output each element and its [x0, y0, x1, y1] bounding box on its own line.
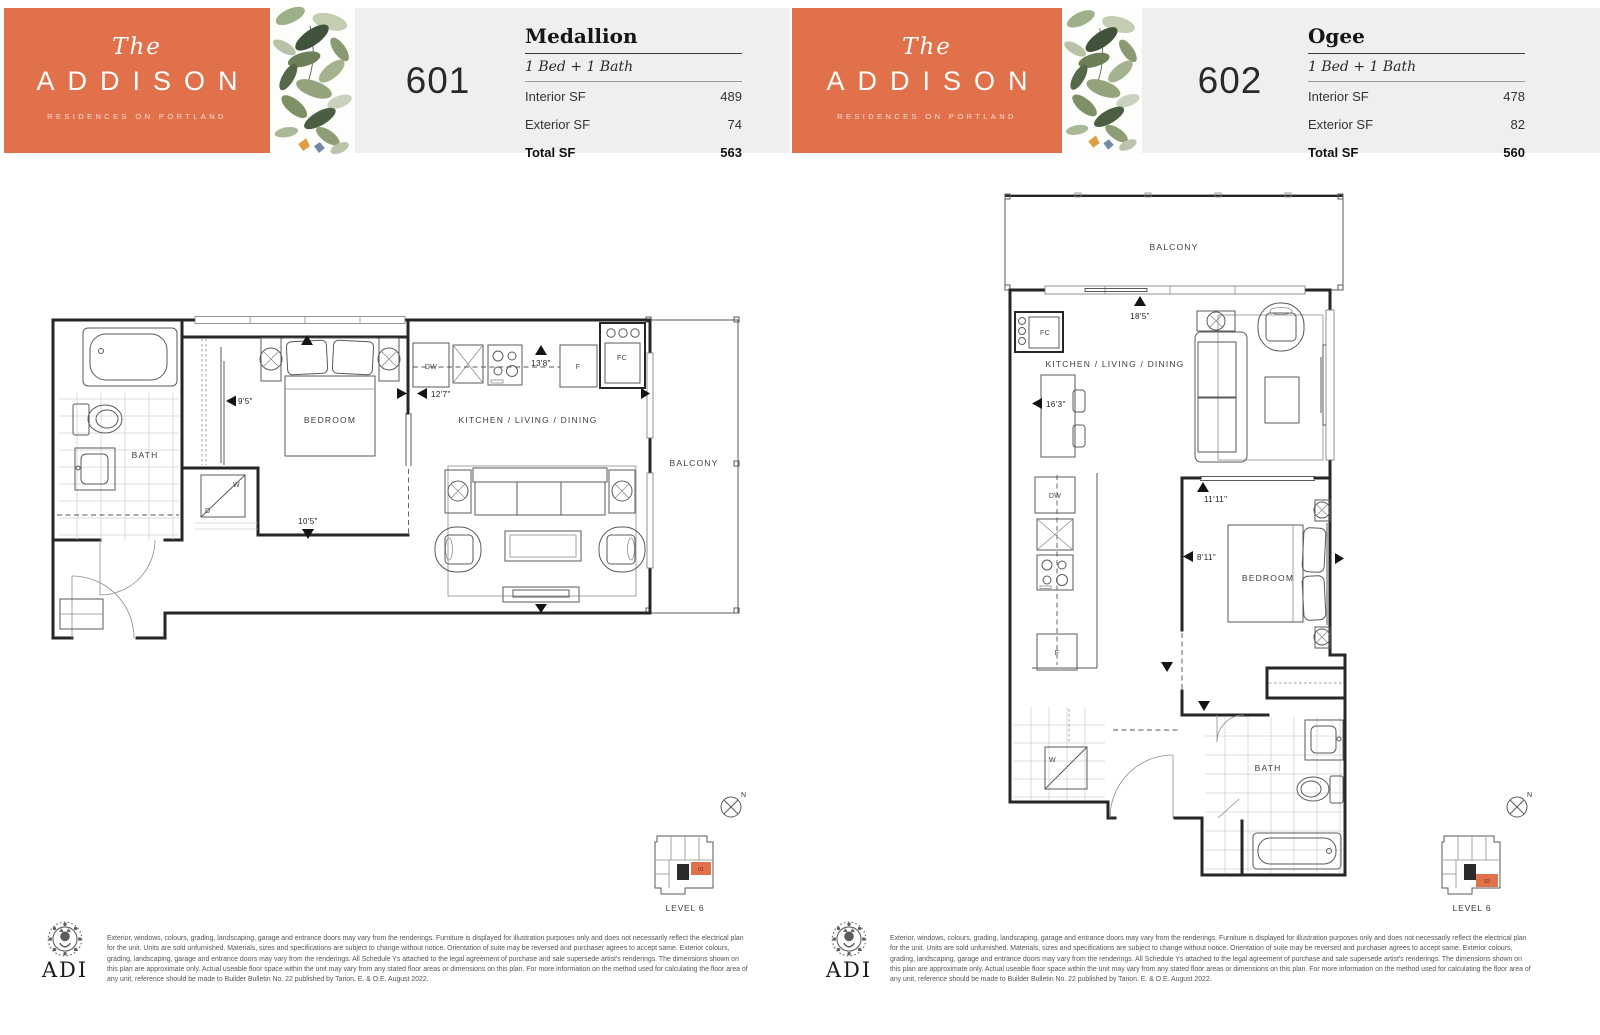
nightstand-lamp-icon [378, 338, 400, 381]
fan-coil-label: FC [617, 355, 627, 362]
keyplan-601: 01 [645, 826, 725, 906]
legal-disclaimer: Exterior, windows, colours, grading, lan… [890, 934, 1534, 986]
unit-number: 602 [1185, 60, 1275, 102]
fan-coil-label: FC [1040, 330, 1050, 337]
level-label: LEVEL 6 [1432, 903, 1512, 913]
adi-lion-logo-icon [828, 918, 870, 960]
balcony-label: BALCONY [669, 458, 718, 468]
laundry-closet: W [1013, 707, 1105, 800]
kitchen-living-dining-label: KITCHEN / LIVING / DINING [458, 415, 597, 425]
spec-value: 489 [720, 89, 742, 104]
botanical-illustration-icon [270, 8, 355, 153]
spec-value: 82 [1511, 117, 1525, 132]
spec-value: 560 [1503, 145, 1525, 160]
cooktop-icon [488, 345, 522, 385]
bath-label: BATH [1255, 763, 1282, 773]
spec-row-exterior: Exterior SF 74 [525, 110, 742, 138]
tv-console-icon [503, 587, 579, 613]
keyplan-unit-label: 01 [698, 867, 704, 873]
toilet-icon [73, 404, 122, 435]
spec-value: 563 [720, 145, 742, 160]
spec-card-602: Ogee 1 Bed + 1 Bath Interior SF 478 Exte… [1308, 24, 1525, 166]
brand-tagline: RESIDENCES ON PORTLAND [4, 112, 270, 121]
bathtub-icon [1253, 833, 1341, 869]
spec-value: 478 [1503, 89, 1525, 104]
kitchen-sink-icon [1037, 519, 1073, 550]
bedroom-label: BEDROOM [1242, 573, 1294, 583]
cooktop-icon [1037, 555, 1073, 590]
toilet-icon [1297, 776, 1343, 803]
fridge-label: F [1055, 650, 1060, 657]
bath-sink-icon [75, 448, 115, 490]
bed-icon [283, 335, 377, 456]
north-label: N [741, 792, 746, 799]
nightstand-lamp-icon [260, 338, 282, 381]
armchair-icon [1258, 303, 1304, 351]
nightstand-lamp-icon [1314, 500, 1330, 521]
keyplan-core [1464, 864, 1476, 880]
plan-name: Medallion [525, 24, 742, 54]
dishwasher-label: DW [425, 364, 437, 371]
north-label: N [1527, 792, 1532, 799]
spec-row-interior: Interior SF 489 [525, 82, 742, 110]
keyplan-602: 02 [1432, 826, 1512, 906]
brand-logo: The ADDISON RESIDENCES ON PORTLAND [792, 8, 1062, 153]
brand-the: The [792, 34, 1062, 60]
level-label: LEVEL 6 [645, 903, 725, 913]
spec-label: Total SF [525, 145, 575, 160]
washer-dryer-icon: W D [195, 475, 258, 529]
bed-bath: 1 Bed + 1 Bath [525, 54, 742, 82]
adi-logo-text: ADI [818, 958, 880, 982]
spec-label: Interior SF [1308, 89, 1369, 104]
balcony-label: BALCONY [1149, 242, 1198, 252]
keyplan-unit-label: 02 [1484, 879, 1490, 885]
plan-name: Ogee [1308, 24, 1525, 54]
side-table-lamp-icon [609, 470, 635, 513]
bath-tile-grid [1205, 717, 1343, 873]
adi-lion-logo-icon [44, 918, 86, 960]
spec-label: Interior SF [525, 89, 586, 104]
side-table-lamp-icon [445, 470, 471, 513]
bed-bath: 1 Bed + 1 Bath [1308, 54, 1525, 82]
spec-row-total: Total SF 563 [525, 138, 742, 166]
brand-the: The [4, 34, 270, 60]
fridge-label: F [576, 364, 581, 371]
spec-row-interior: Interior SF 478 [1308, 82, 1525, 110]
brand-logo: The ADDISON RESIDENCES ON PORTLAND [4, 8, 270, 153]
keyplan-core [677, 864, 689, 880]
kitchen-island-icon [1041, 375, 1085, 457]
floral-artwork [270, 8, 355, 153]
kitchen-counter: DW F [1032, 473, 1097, 670]
coffee-table-icon [505, 531, 581, 561]
side-table-lamp-icon [1197, 311, 1235, 331]
bathtub-icon [83, 328, 177, 386]
dim-bedroom-width: 9'5" [238, 397, 253, 406]
ottoman-icon [1265, 377, 1299, 423]
dryer-label: D [205, 508, 210, 515]
kitchen-sink-icon [453, 345, 483, 383]
bath-closet [1218, 799, 1242, 875]
brand-name: ADDISON [805, 66, 1062, 97]
washer-label: W [1049, 757, 1056, 764]
floral-artwork [1062, 8, 1142, 153]
bedroom-closet [1267, 668, 1345, 698]
compass-icon: N [716, 786, 752, 822]
rug [1218, 315, 1323, 460]
spec-row-exterior: Exterior SF 82 [1308, 110, 1525, 138]
bedroom-label: BEDROOM [304, 415, 356, 425]
unit-number: 601 [393, 60, 483, 102]
armchair-icon [435, 527, 481, 572]
spec-label: Exterior SF [1308, 117, 1373, 132]
armchair-icon [599, 527, 645, 572]
kitchen-counter: DW F [413, 343, 597, 387]
dim-living-width: 16'3" [1046, 400, 1066, 409]
dim-bedroom-length: 10'5" [298, 517, 318, 526]
botanical-illustration-icon [1062, 8, 1142, 153]
brand-name: ADDISON [17, 66, 270, 97]
compass-icon: N [1502, 786, 1538, 822]
spec-label: Exterior SF [525, 117, 590, 132]
spec-value: 74 [728, 117, 742, 132]
adi-logo-text: ADI [34, 958, 96, 982]
spec-row-total: Total SF 560 [1308, 138, 1525, 166]
bath-sink-icon [1305, 720, 1343, 760]
bath-label: BATH [132, 450, 159, 460]
dim-living-width: 12'7" [431, 390, 451, 399]
washer-label: W [233, 482, 240, 489]
sofa-icon [473, 468, 607, 515]
fan-coil-unit: FC [600, 323, 645, 388]
floorplan-602: BALCONY 18'5" FC KITCHEN / LIVING / DINI… [985, 185, 1385, 885]
dishwasher-label: DW [1049, 493, 1061, 500]
nightstand-lamp-icon [1314, 627, 1330, 648]
fan-coil-unit: FC [1015, 312, 1063, 352]
sofa-icon [1195, 332, 1247, 462]
legal-disclaimer: Exterior, windows, colours, grading, lan… [107, 934, 751, 986]
dim-kitchen-length: 13'8" [531, 359, 551, 368]
kitchen-living-dining-label: KITCHEN / LIVING / DINING [1045, 359, 1184, 369]
spec-card-601: Medallion 1 Bed + 1 Bath Interior SF 489… [525, 24, 742, 166]
floorplan-sheet: The ADDISON RESIDENCES ON PORTLAND [0, 0, 1600, 1035]
brand-tagline: RESIDENCES ON PORTLAND [792, 112, 1062, 121]
floorplan-601: BALCONY [45, 303, 745, 648]
dim-bedroom-length: 11'11" [1204, 495, 1227, 504]
spec-label: Total SF [1308, 145, 1358, 160]
dim-bedroom-width: 8'11" [1197, 553, 1216, 562]
dim-living-length: 18'5" [1130, 312, 1150, 321]
